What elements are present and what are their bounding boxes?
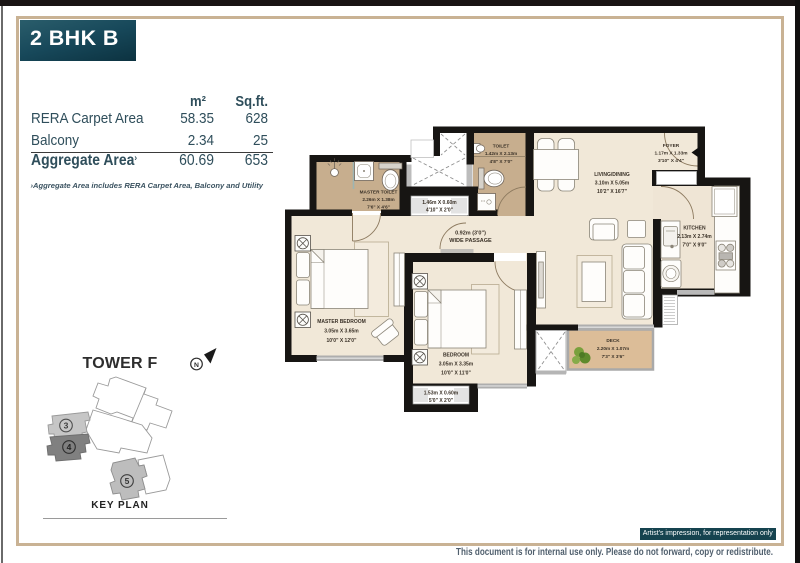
svg-text:N: N [194,362,199,369]
svg-text:1.46m X 0.60m: 1.46m X 0.60m [422,200,457,206]
svg-text:3.10m X 5.05m: 3.10m X 5.05m [595,181,630,187]
svg-text:10'0" X 11'0": 10'0" X 11'0" [441,371,471,377]
svg-text:0.92m (3'0"): 0.92m (3'0") [455,231,486,237]
svg-text:10'0" X 12'0": 10'0" X 12'0" [327,338,358,344]
svg-text:KITCHEN: KITCHEN [683,226,706,232]
svg-text:10'2" X 16'7": 10'2" X 16'7" [597,189,628,195]
svg-text:7'3" X 3'6": 7'3" X 3'6" [602,354,625,359]
svg-text:1.17m X 1.33m: 1.17m X 1.33m [654,151,687,157]
svg-text:7'0" X 9'0": 7'0" X 9'0" [682,242,707,248]
svg-text:WIDE PASSAGE: WIDE PASSAGE [449,238,492,244]
svg-text:5'0" X 2'0": 5'0" X 2'0" [429,398,454,404]
svg-text:TOILET: TOILET [493,144,510,149]
svg-text:1.53m X 0.60m: 1.53m X 0.60m [424,391,459,397]
svg-text:1.42m X 2.13m: 1.42m X 2.13m [485,151,517,156]
svg-text:2.20m X 1.07m: 2.20m X 1.07m [597,346,629,351]
svg-text:4'8" X 7'0": 4'8" X 7'0" [490,159,513,164]
svg-text:7'6" X 4'6": 7'6" X 4'6" [367,205,390,210]
svg-text:3: 3 [64,421,69,431]
svg-text:BEDROOM: BEDROOM [443,353,469,359]
svg-text:FOYER: FOYER [663,143,680,149]
svg-text:4: 4 [67,442,72,452]
svg-text:2.13m X 2.74m: 2.13m X 2.74m [677,234,712,240]
svg-text:4'10" X 2'0": 4'10" X 2'0" [426,208,454,214]
svg-text:LIVING/DINING: LIVING/DINING [594,172,630,178]
svg-text:3.05m X 3.35m: 3.05m X 3.35m [439,362,474,368]
svg-text:DECK: DECK [606,338,620,343]
svg-text:MASTER BEDROOM: MASTER BEDROOM [317,319,366,325]
svg-text:3'10" X 4'4": 3'10" X 4'4" [658,158,684,164]
svg-text:5: 5 [125,476,130,486]
svg-text:MASTER TOILET: MASTER TOILET [360,190,398,195]
svg-text:3.05m X 3.65m: 3.05m X 3.65m [324,329,359,335]
svg-text:2.26m X 1.38m: 2.26m X 1.38m [362,197,394,202]
